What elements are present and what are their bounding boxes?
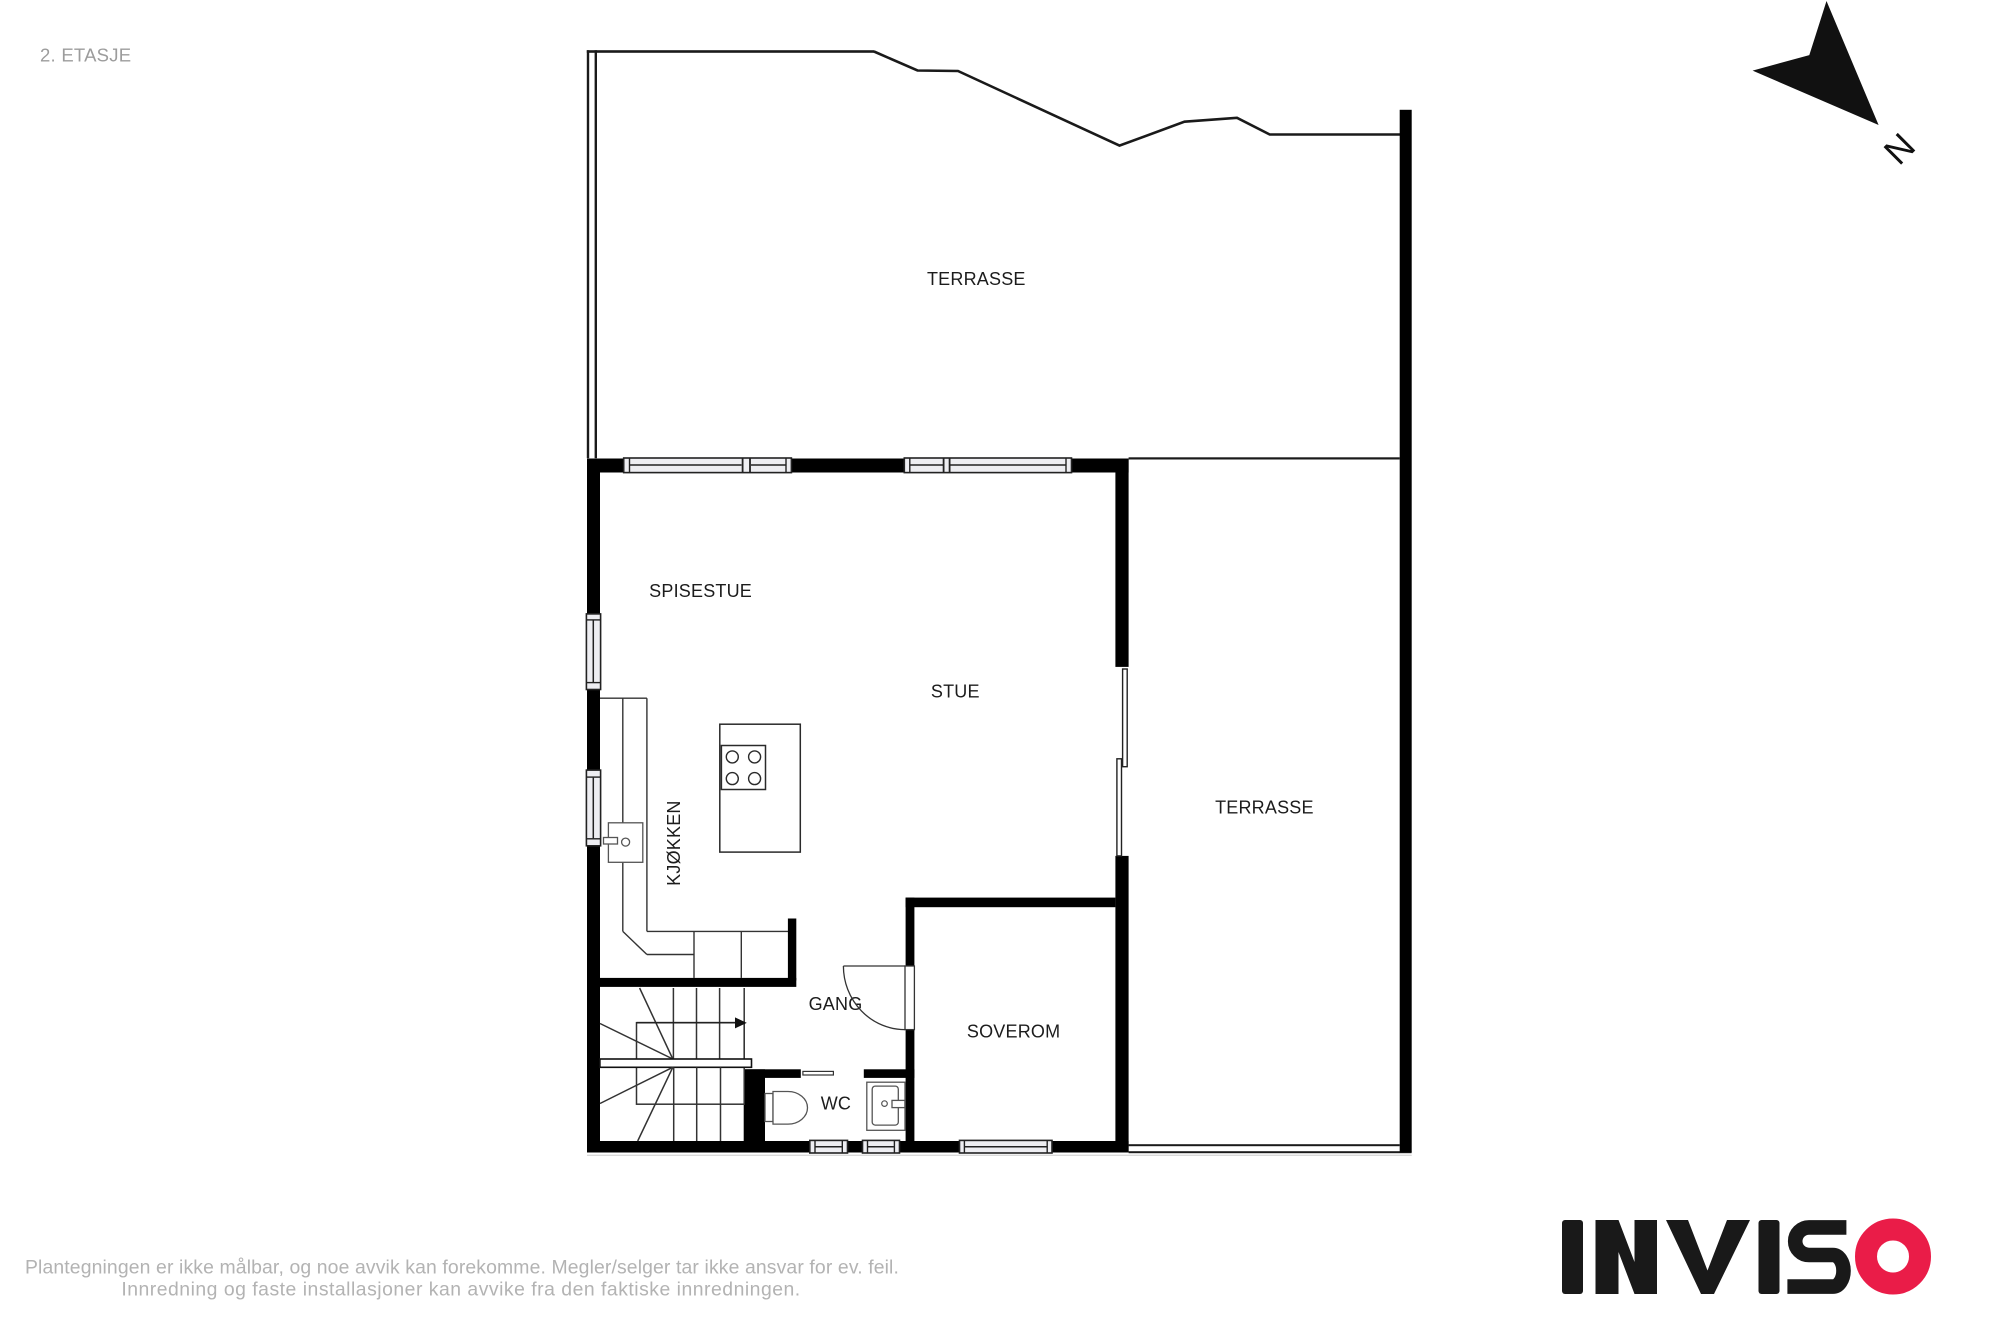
svg-text:SOVEROM: SOVEROM (967, 1022, 1060, 1042)
svg-text:N: N (1876, 125, 1923, 172)
svg-text:GANG: GANG (809, 994, 863, 1014)
svg-text:Innredning og faste installasj: Innredning og faste installasjoner kan a… (121, 1278, 800, 1300)
svg-text:TERRASSE: TERRASSE (927, 269, 1026, 289)
svg-text:STUE: STUE (931, 681, 980, 701)
svg-text:2. ETASJE: 2. ETASJE (40, 45, 131, 66)
svg-text:WC: WC (821, 1094, 851, 1114)
svg-text:KJØKKEN: KJØKKEN (664, 800, 684, 885)
svg-text:Plantegningen er ikke målbar,: Plantegningen er ikke målbar, og noe avv… (25, 1257, 899, 1279)
svg-text:TERRASSE: TERRASSE (1215, 797, 1314, 817)
svg-text:SPISESTUE: SPISESTUE (649, 581, 752, 601)
